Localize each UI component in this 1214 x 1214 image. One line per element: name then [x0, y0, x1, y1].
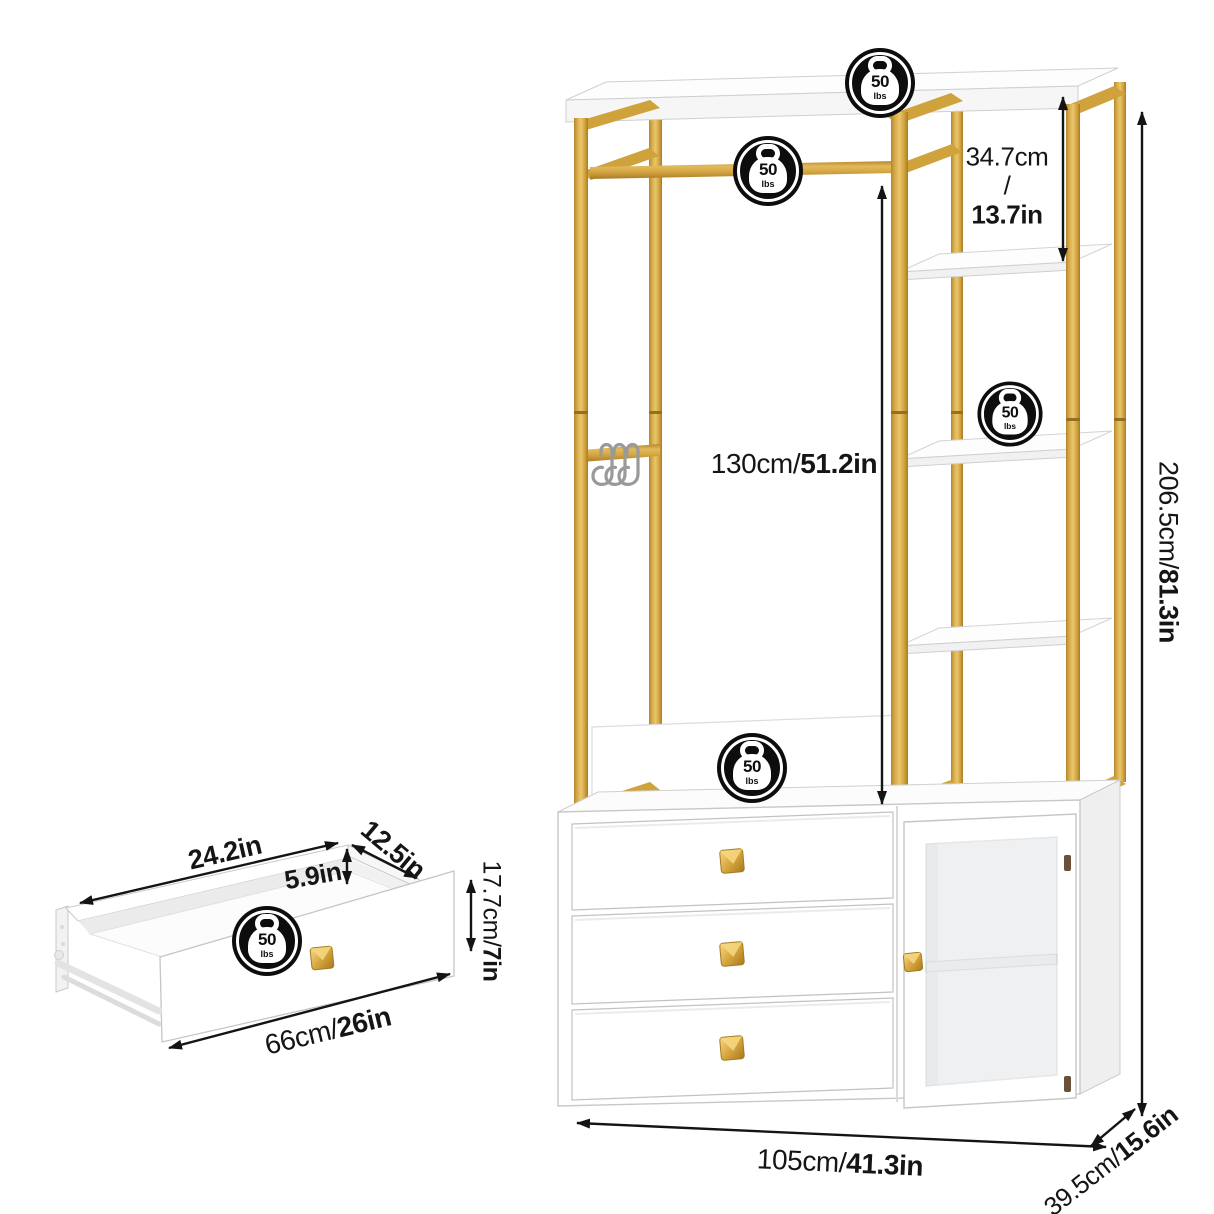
arrow-total-width [577, 1123, 1106, 1147]
drawer-knob-2 [720, 942, 745, 967]
label-total-height: 206.5cm/81.3in [1153, 461, 1184, 643]
shelf-1 [899, 244, 1112, 280]
door-hinge-bottom [1064, 1076, 1071, 1092]
label-shelf-spacing: 34.7cm / 13.7in [966, 142, 1049, 229]
drawer-knob-3 [720, 1036, 745, 1061]
weight-capacity-badge: 50 lbs [845, 48, 915, 118]
shelf-3 [899, 618, 1112, 654]
door-knob [903, 952, 923, 972]
product-dimension-diagram: 50 lbs 50 lbs 50 lbs 50 lbs 50 lbs 34.7c… [0, 0, 1214, 1214]
side-hook-rail [581, 444, 660, 462]
cabinet-right-side [1080, 780, 1120, 1094]
weight-capacity-badge: 50 lbs [977, 381, 1042, 446]
weight-capacity-badge: 50 lbs [733, 136, 803, 206]
detail-drawer-knob [310, 946, 334, 970]
door-hinge-top [1064, 855, 1071, 871]
label-drawer-front-height: 17.7cm/7in [477, 860, 506, 981]
weight-capacity-badge: 50 lbs [232, 906, 302, 976]
weight-capacity-badge: 50 lbs [717, 733, 787, 803]
bottom-cabinet [558, 780, 1120, 1108]
glass-door [903, 814, 1076, 1108]
label-hanging-height: 130cm/51.2in [711, 448, 877, 480]
top-panel [566, 68, 1118, 122]
drawer-knob-1 [720, 849, 745, 874]
